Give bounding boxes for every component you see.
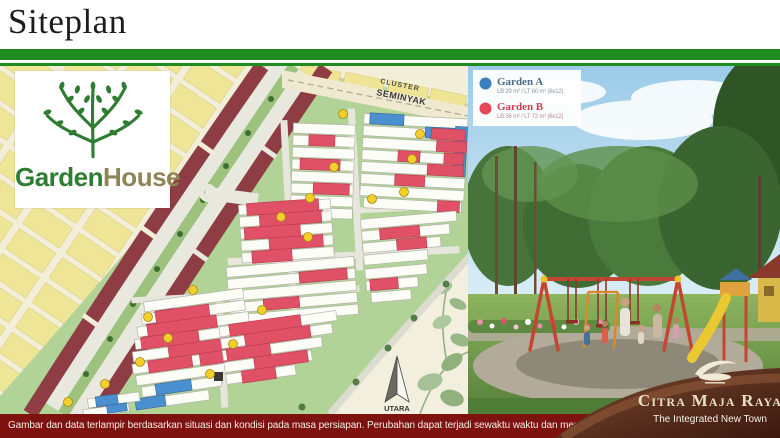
siteplan-slide: Siteplan xyxy=(0,0,780,438)
utility-box xyxy=(214,372,223,381)
legend-garden-b-name: Garden B xyxy=(497,101,563,113)
gardenhouse-logo: GardenHouse xyxy=(15,71,170,208)
brand-corner: Citra Maja Raya The Integrated New Town xyxy=(555,328,780,438)
siteplan-map: CLUSTER SEMINYAK xyxy=(0,66,470,414)
brand-tagline: The Integrated New Town xyxy=(653,414,767,425)
house-rows-mid-left xyxy=(238,198,334,264)
legend: Garden A LB 29 m² / LT 60 m² (6x12) Gard… xyxy=(473,70,581,126)
header-rule-thick xyxy=(0,49,780,60)
legend-garden-a-spec: LB 29 m² / LT 60 m² (6x12) xyxy=(497,88,563,96)
disclaimer-text: Gambar dan data terlampir berdasarkan si… xyxy=(0,414,628,438)
legend-item-garden-a: Garden A LB 29 m² / LT 60 m² (6x12) xyxy=(479,76,575,96)
legend-item-garden-b: Garden B LB 36 m² / LT 72 m² (6x12) xyxy=(479,101,575,121)
brand-graphic: Citra Maja Raya The Integrated New Town xyxy=(555,328,780,438)
logo-word-garden: Garden xyxy=(15,162,103,192)
garden-a-swatch-icon xyxy=(479,77,492,90)
garden-b-swatch-icon xyxy=(479,102,492,115)
brand-name: Citra Maja Raya xyxy=(638,391,780,410)
logo-wordmark: GardenHouse xyxy=(15,162,170,193)
legend-garden-a-name: Garden A xyxy=(497,76,563,88)
tree-icon xyxy=(33,75,153,159)
compass-label: UTARA xyxy=(384,404,410,413)
logo-word-house: House xyxy=(103,162,180,192)
page-title: Siteplan xyxy=(8,2,127,42)
legend-garden-b-spec: LB 36 m² / LT 72 m² (6x12) xyxy=(497,113,563,121)
